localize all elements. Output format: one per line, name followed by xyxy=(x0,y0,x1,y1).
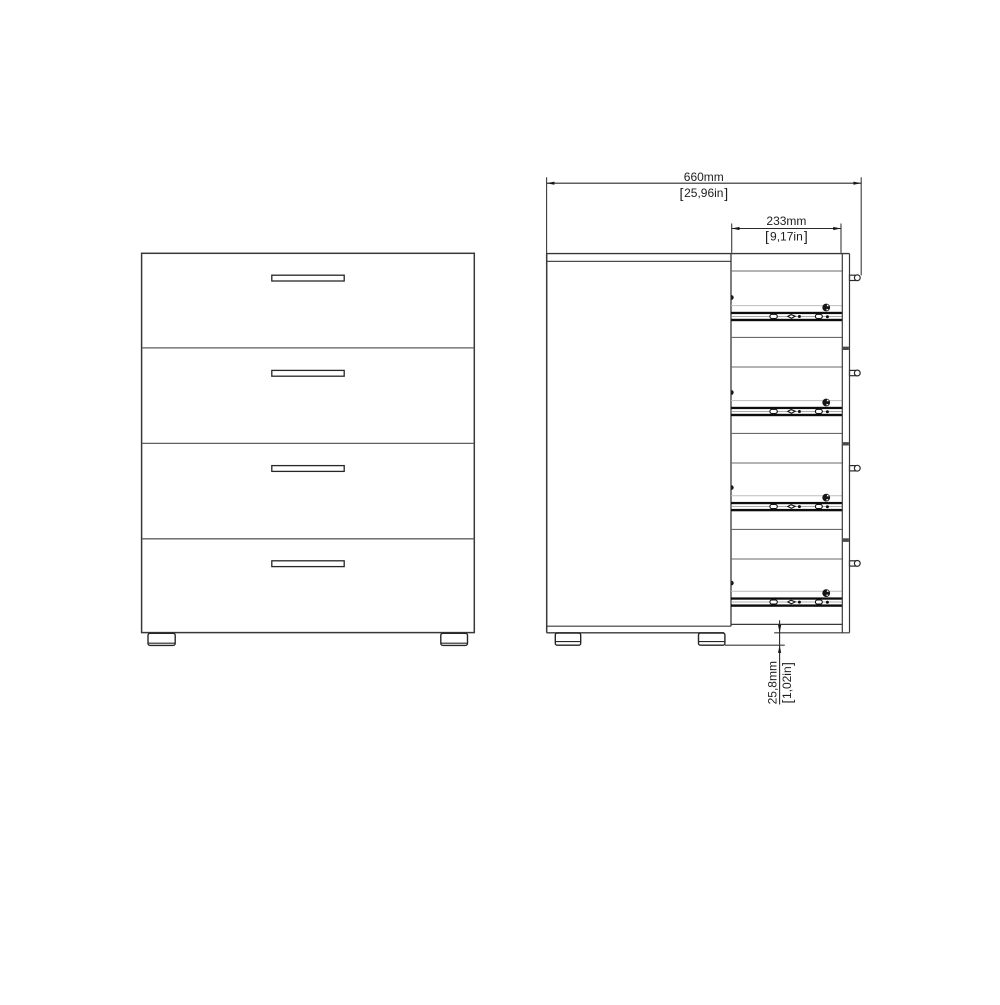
svg-text:]: ] xyxy=(724,185,728,201)
svg-text:25,96in: 25,96in xyxy=(684,186,723,200)
svg-text:]: ] xyxy=(804,228,808,244)
svg-text:25,8mm: 25,8mm xyxy=(766,661,780,704)
svg-text:233mm: 233mm xyxy=(766,214,806,228)
svg-text:]: ] xyxy=(779,662,795,666)
svg-text:9,17in: 9,17in xyxy=(770,230,803,244)
svg-text:[: [ xyxy=(779,699,795,703)
svg-text:1,02in: 1,02in xyxy=(780,666,794,699)
svg-text:660mm: 660mm xyxy=(684,170,724,184)
svg-text:[: [ xyxy=(680,185,684,201)
svg-text:[: [ xyxy=(765,228,769,244)
